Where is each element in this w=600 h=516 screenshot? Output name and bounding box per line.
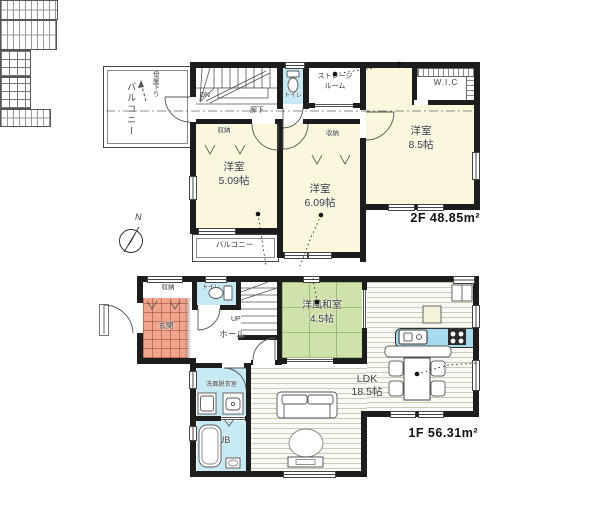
wic-label: W.I.C bbox=[424, 79, 468, 88]
compass-north-label: N bbox=[135, 212, 142, 222]
bedroom-main-name: 洋室 bbox=[386, 126, 456, 138]
door-opening bbox=[360, 110, 366, 138]
balcony-2f-left bbox=[103, 66, 192, 148]
bedroom-main-size: 8.5帖 bbox=[386, 140, 456, 152]
bedroom-a-name: 洋室 bbox=[198, 162, 270, 174]
stairs-up-label: UP bbox=[231, 316, 241, 324]
ldk-size: 18.5帖 bbox=[342, 387, 392, 399]
wall bbox=[190, 62, 480, 68]
window bbox=[283, 471, 336, 478]
kitchen-counter bbox=[395, 328, 475, 348]
door-opening bbox=[198, 305, 220, 310]
wall bbox=[190, 471, 367, 477]
toilet-2f-label: トイレ bbox=[282, 93, 304, 100]
window bbox=[308, 252, 332, 259]
window bbox=[189, 426, 197, 441]
hall-label: ホール bbox=[204, 330, 260, 340]
sliding-door bbox=[287, 358, 333, 364]
closet-a bbox=[0, 0, 58, 20]
window bbox=[198, 228, 236, 235]
balcony-left-label: バルコニー bbox=[126, 82, 136, 137]
bath-folding-door bbox=[221, 416, 245, 421]
window bbox=[205, 276, 227, 283]
compass bbox=[120, 227, 143, 253]
window bbox=[285, 62, 305, 69]
porch-tile bbox=[0, 77, 31, 109]
wall bbox=[277, 276, 282, 363]
window bbox=[417, 204, 444, 211]
room-washroom bbox=[197, 368, 246, 416]
wall bbox=[137, 358, 196, 364]
stairs-1f bbox=[241, 282, 277, 330]
wall bbox=[236, 276, 241, 310]
toilet-1f-label: トイレ bbox=[197, 285, 225, 292]
wall bbox=[277, 119, 283, 234]
wall bbox=[277, 62, 283, 108]
sliding-door bbox=[362, 290, 367, 328]
floor2-plan: バルコニー 母屋下り DN トイレ ストレージ ルーム 廊下 収納 収納 W.I… bbox=[0, 0, 600, 50]
entrance-step bbox=[99, 304, 109, 336]
bedroom-b-size: 6.09帖 bbox=[284, 198, 356, 210]
door-opening bbox=[414, 100, 428, 105]
window bbox=[472, 360, 480, 391]
bath-label: UB bbox=[213, 435, 235, 445]
tatami-room-name: 洋風和室 bbox=[284, 300, 360, 311]
entrance-label: 玄関 bbox=[150, 322, 182, 330]
window bbox=[472, 152, 480, 180]
window bbox=[390, 411, 416, 418]
stairs-dn-label: DN bbox=[200, 92, 210, 100]
floor-plan: バルコニー 母屋下り DN トイレ ストレージ ルーム 廊下 収納 収納 W.I… bbox=[0, 0, 600, 516]
window bbox=[303, 276, 320, 283]
room-bath bbox=[197, 421, 246, 471]
door-opening bbox=[283, 104, 303, 109]
door-opening bbox=[222, 363, 244, 368]
roof-slope-label: 母屋下り bbox=[151, 71, 158, 97]
window bbox=[418, 411, 444, 418]
closet-b bbox=[0, 20, 57, 50]
washroom-label: 洗面脱衣室 bbox=[196, 382, 247, 389]
sliding-door bbox=[315, 103, 353, 108]
door-opening bbox=[253, 360, 275, 365]
balcony-south-label: バルコニー bbox=[202, 241, 267, 249]
tatami-room-size: 4.5帖 bbox=[284, 314, 360, 325]
window bbox=[472, 305, 480, 328]
wall bbox=[412, 62, 417, 105]
window bbox=[453, 276, 475, 284]
wall bbox=[190, 119, 362, 124]
ldk-name: LDK bbox=[346, 374, 388, 386]
wall bbox=[473, 276, 479, 417]
bedroom-a-size: 5.09帖 bbox=[198, 176, 270, 188]
bedroom-b-name: 洋室 bbox=[284, 184, 356, 196]
window bbox=[147, 276, 183, 283]
wall bbox=[361, 411, 367, 477]
window bbox=[388, 204, 415, 211]
door-opening bbox=[190, 97, 196, 122]
door-opening bbox=[283, 119, 303, 124]
storage-room-label: ストレージ bbox=[310, 73, 360, 81]
closet-1f-label: 収納 bbox=[146, 284, 190, 291]
porch-tile bbox=[0, 50, 31, 77]
closet-a-label: 収納 bbox=[202, 127, 246, 134]
entrance-door-opening bbox=[137, 303, 143, 333]
door-opening bbox=[252, 119, 275, 124]
window bbox=[189, 176, 197, 200]
storage-room-label: ルーム bbox=[310, 83, 360, 91]
wall bbox=[190, 62, 196, 234]
corridor-label: 廊下 bbox=[250, 107, 264, 115]
wall bbox=[474, 62, 480, 210]
closet-b-label: 収納 bbox=[308, 130, 357, 137]
floor2-area-label: 2F 48.85m² bbox=[370, 211, 480, 225]
closet-1f bbox=[0, 109, 51, 127]
window bbox=[284, 252, 308, 259]
floor1-area-label: 1F 56.31m² bbox=[368, 426, 478, 440]
